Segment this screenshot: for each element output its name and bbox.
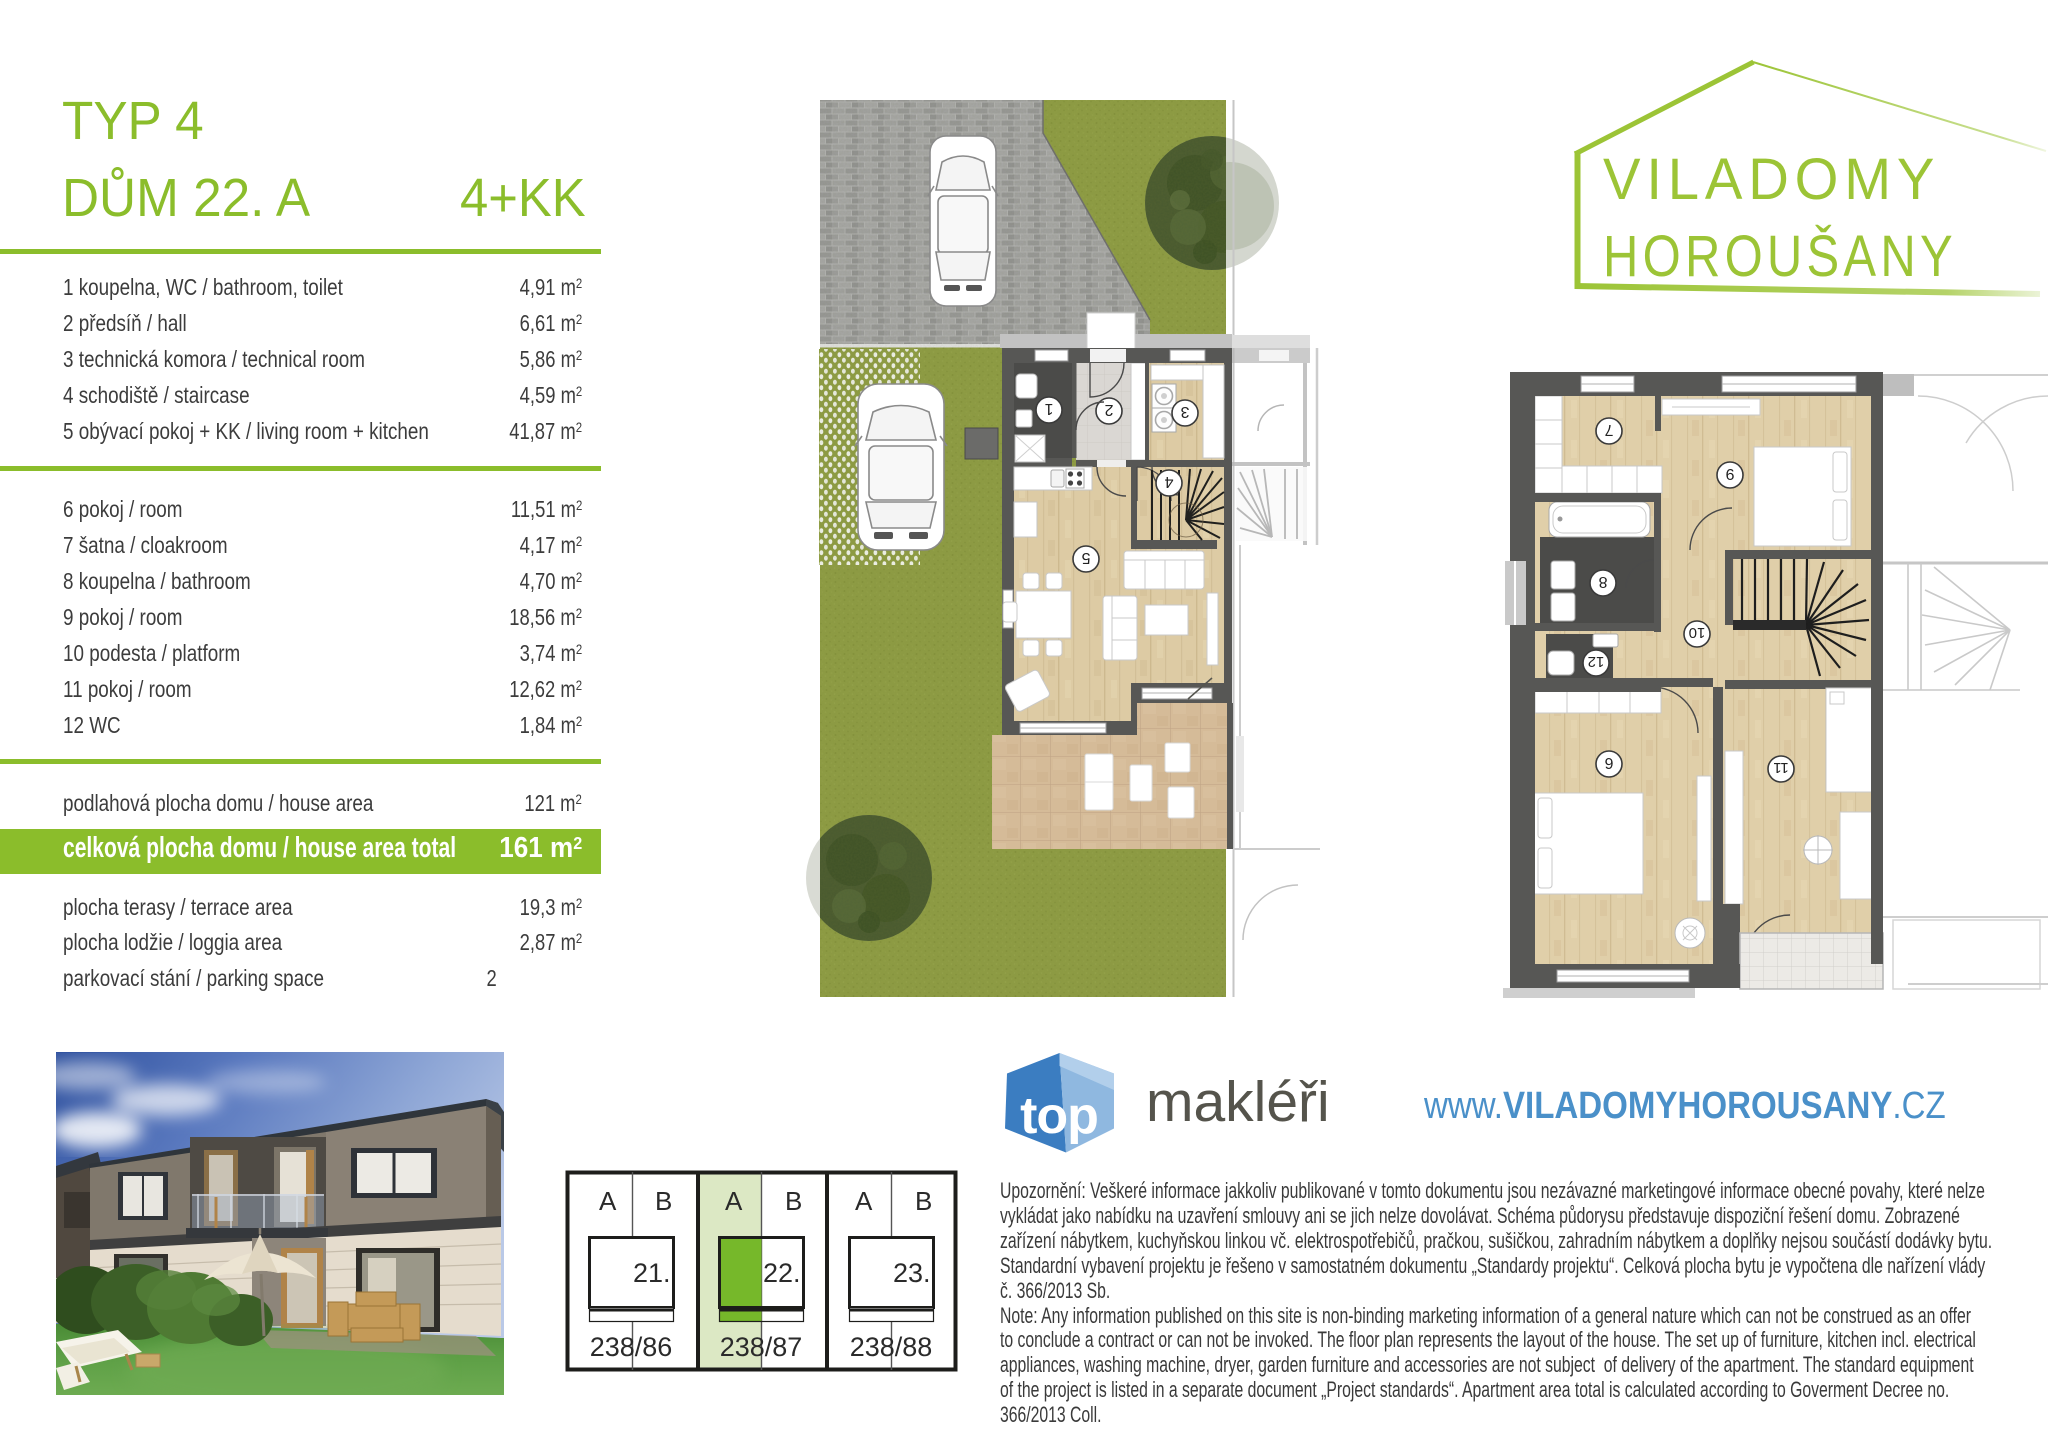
svg-text:11: 11 bbox=[1773, 759, 1789, 776]
svg-text:3: 3 bbox=[1180, 403, 1189, 420]
svg-text:makléři: makléři bbox=[1146, 1070, 1330, 1134]
svg-text:A: A bbox=[599, 1186, 617, 1216]
svg-text:22.: 22. bbox=[763, 1258, 801, 1288]
svg-text:12: 12 bbox=[1588, 653, 1605, 670]
svg-text:B: B bbox=[785, 1186, 802, 1216]
svg-text:B: B bbox=[655, 1186, 672, 1216]
svg-text:VILADOMY: VILADOMY bbox=[1603, 147, 1940, 212]
svg-text:6: 6 bbox=[1604, 754, 1613, 771]
svg-text:1: 1 bbox=[1044, 400, 1053, 417]
svg-text:2: 2 bbox=[1104, 401, 1113, 418]
svg-text:10: 10 bbox=[1689, 624, 1706, 641]
svg-text:A: A bbox=[725, 1186, 743, 1216]
svg-text:5: 5 bbox=[1081, 549, 1090, 566]
svg-text:238/87: 238/87 bbox=[720, 1332, 803, 1362]
svg-text:21.: 21. bbox=[633, 1258, 671, 1288]
svg-text:238/86: 238/86 bbox=[590, 1332, 673, 1362]
svg-text:9: 9 bbox=[1725, 465, 1734, 482]
svg-text:8: 8 bbox=[1598, 573, 1607, 590]
svg-text:238/88: 238/88 bbox=[850, 1332, 933, 1362]
svg-text:7: 7 bbox=[1604, 421, 1613, 438]
svg-text:B: B bbox=[915, 1186, 932, 1216]
svg-text:top: top bbox=[1020, 1087, 1098, 1145]
svg-text:HOROUŠANY: HOROUŠANY bbox=[1603, 224, 1957, 289]
svg-text:A: A bbox=[855, 1186, 873, 1216]
svg-text:4: 4 bbox=[1164, 473, 1173, 490]
svg-text:23.: 23. bbox=[893, 1258, 931, 1288]
